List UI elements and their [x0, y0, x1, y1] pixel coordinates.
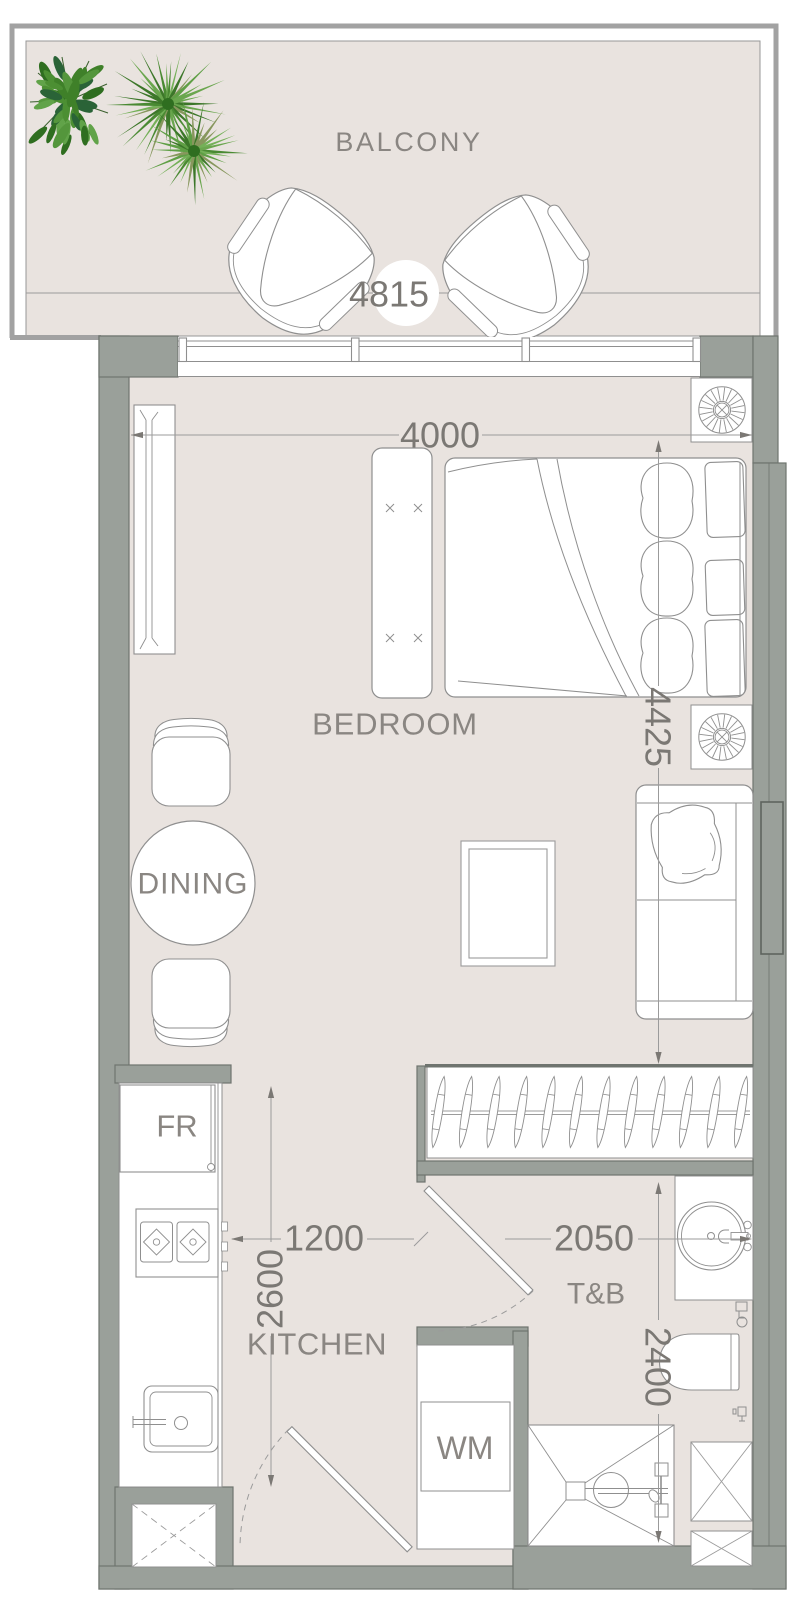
svg-text:4815: 4815 — [349, 274, 429, 315]
svg-text:2400: 2400 — [638, 1327, 679, 1407]
svg-text:1200: 1200 — [284, 1218, 364, 1259]
svg-text:BEDROOM: BEDROOM — [312, 707, 478, 742]
svg-text:2600: 2600 — [250, 1249, 291, 1329]
svg-text:FR: FR — [156, 1109, 197, 1144]
svg-text:T&B: T&B — [567, 1278, 625, 1311]
svg-text:KITCHEN: KITCHEN — [247, 1327, 387, 1362]
svg-text:4000: 4000 — [400, 415, 480, 456]
svg-text:WM: WM — [437, 1430, 494, 1466]
svg-text:DINING: DINING — [138, 868, 249, 901]
svg-text:2050: 2050 — [554, 1218, 634, 1259]
svg-text:4425: 4425 — [638, 687, 679, 767]
svg-text:BALCONY: BALCONY — [335, 127, 482, 157]
